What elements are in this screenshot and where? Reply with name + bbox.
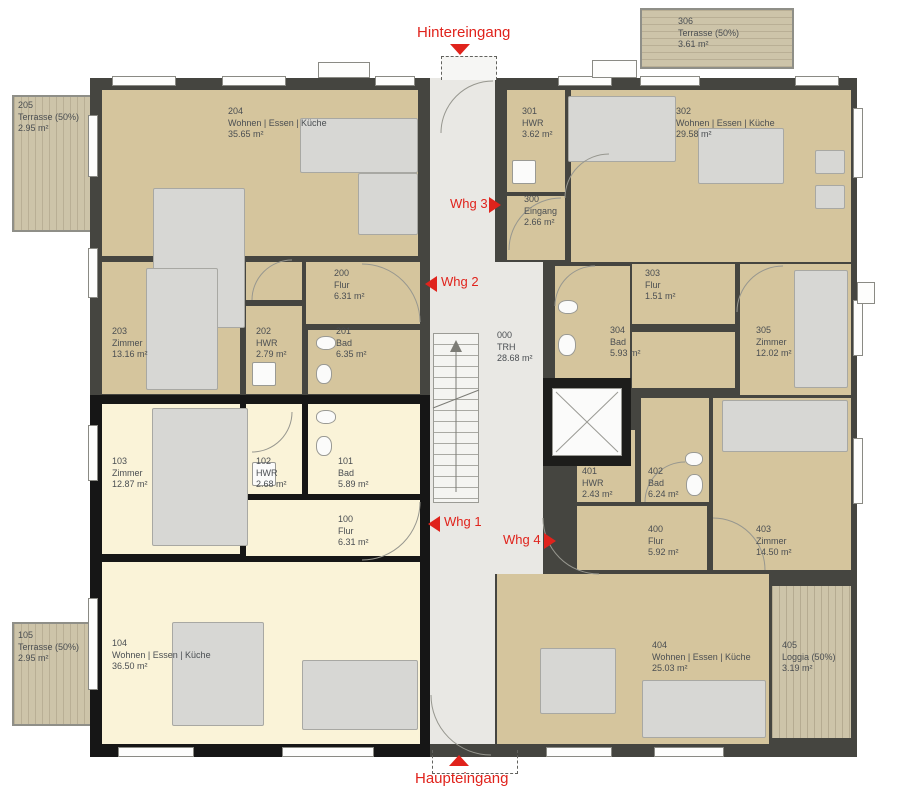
window: [88, 115, 98, 177]
room-label-405: 405Loggia (50%)3.19 m²: [782, 640, 836, 675]
exterior-box: [857, 282, 875, 304]
window: [222, 76, 286, 86]
bed-403: [722, 400, 848, 452]
elevator-car: [552, 388, 622, 456]
chair-302-a: [815, 150, 845, 174]
window: [112, 76, 176, 86]
sink-304: [558, 300, 578, 314]
room-label-201: 201Bad6.35 m²: [336, 326, 367, 361]
bed-103: [152, 408, 248, 546]
washer-202: [252, 362, 276, 386]
room-label-103: 103Zimmer12.87 m²: [112, 456, 148, 491]
whg1-marker: Whg 1: [444, 514, 482, 529]
room-label-301: 301HWR3.62 m²: [522, 106, 553, 141]
sofa-404: [642, 680, 766, 738]
whg2-marker: Whg 2: [441, 274, 479, 289]
window: [853, 438, 863, 504]
washer-301: [512, 160, 536, 184]
bed-305: [794, 270, 848, 388]
rear-entrance-arrow-icon: [450, 44, 470, 55]
whg3-marker: Whg 3: [450, 196, 488, 211]
window: [546, 747, 612, 757]
room-label-304: 304Bad5.93 m²: [610, 325, 641, 360]
toilet-101: [316, 436, 332, 456]
room-label-404: 404Wohnen | Essen | Küche25.03 m²: [652, 640, 751, 675]
chair-302-b: [815, 185, 845, 209]
skylight-left: [318, 62, 370, 78]
window: [853, 108, 863, 178]
room-label-102: 102HWR2.68 m²: [256, 456, 287, 491]
sofa-204-corner: [358, 173, 418, 235]
window: [88, 425, 98, 481]
toilet-402: [686, 474, 703, 496]
room-label-402: 402Bad6.24 m²: [648, 466, 679, 501]
room-label-306: 306Terrasse (50%)3.61 m²: [678, 16, 739, 51]
room-100: [246, 500, 420, 556]
whg4-marker: Whg 4: [503, 532, 541, 547]
whg1-arrow-icon: [428, 516, 440, 532]
whg2-arrow-icon: [425, 276, 437, 292]
window: [640, 76, 700, 86]
room-label-200: 200Flur6.31 m²: [334, 268, 365, 303]
room-label-300: 300Eingang2.66 m²: [524, 194, 557, 229]
toilet-304: [558, 334, 576, 356]
room-label-203: 203Zimmer13.16 m²: [112, 326, 148, 361]
rear-entrance-porch: [441, 56, 497, 80]
room-label-105: 105Terrasse (50%)2.95 m²: [18, 630, 79, 665]
room-label-101: 101Bad5.89 m²: [338, 456, 369, 491]
main-entrance-label: Haupteingang: [415, 770, 508, 787]
sofa-104: [302, 660, 418, 730]
corridor-extension: [495, 262, 543, 574]
sink-402: [685, 452, 703, 466]
room-label-100: 100Flur6.31 m²: [338, 514, 369, 549]
room-304-annex: [632, 332, 735, 388]
room-204-vestibule: [246, 262, 302, 300]
whg3-arrow-icon: [489, 197, 501, 213]
staircase: [433, 333, 479, 503]
bed-203: [146, 268, 218, 390]
toilet-201: [316, 364, 332, 384]
room-label-000-trh: 000TRH28.68 m²: [497, 330, 533, 365]
window: [795, 76, 839, 86]
window: [88, 598, 98, 690]
main-entrance-arrow-icon: [449, 755, 469, 766]
sofa-302: [568, 96, 676, 162]
room-label-202: 202HWR2.79 m²: [256, 326, 287, 361]
room-label-401: 401HWR2.43 m²: [582, 466, 613, 501]
room-label-305: 305Zimmer12.02 m²: [756, 325, 792, 360]
window: [88, 248, 98, 298]
room-label-205: 205Terrasse (50%)2.95 m²: [18, 100, 79, 135]
sink-101: [316, 410, 336, 424]
window: [654, 747, 724, 757]
floor-plan: 205Terrasse (50%)2.95 m² 204Wohnen | Ess…: [0, 0, 900, 807]
room-400: [577, 506, 707, 570]
rear-entrance-label: Hintereingang: [417, 24, 510, 41]
room-label-204: 204Wohnen | Essen | Küche35.65 m²: [228, 106, 327, 141]
skylight-right: [592, 60, 637, 78]
room-label-400: 400Flur5.92 m²: [648, 524, 679, 559]
room-label-403: 403Zimmer14.50 m²: [756, 524, 792, 559]
room-label-104: 104Wohnen | Essen | Küche36.50 m²: [112, 638, 211, 673]
dining-table-404: [540, 648, 616, 714]
sink-201: [316, 336, 336, 350]
room-label-303: 303Flur1.51 m²: [645, 268, 676, 303]
whg4-arrow-icon: [544, 533, 556, 549]
window: [118, 747, 194, 757]
window: [853, 300, 863, 356]
room-label-302: 302Wohnen | Essen | Küche29.58 m²: [676, 106, 775, 141]
window: [282, 747, 374, 757]
window: [375, 76, 415, 86]
